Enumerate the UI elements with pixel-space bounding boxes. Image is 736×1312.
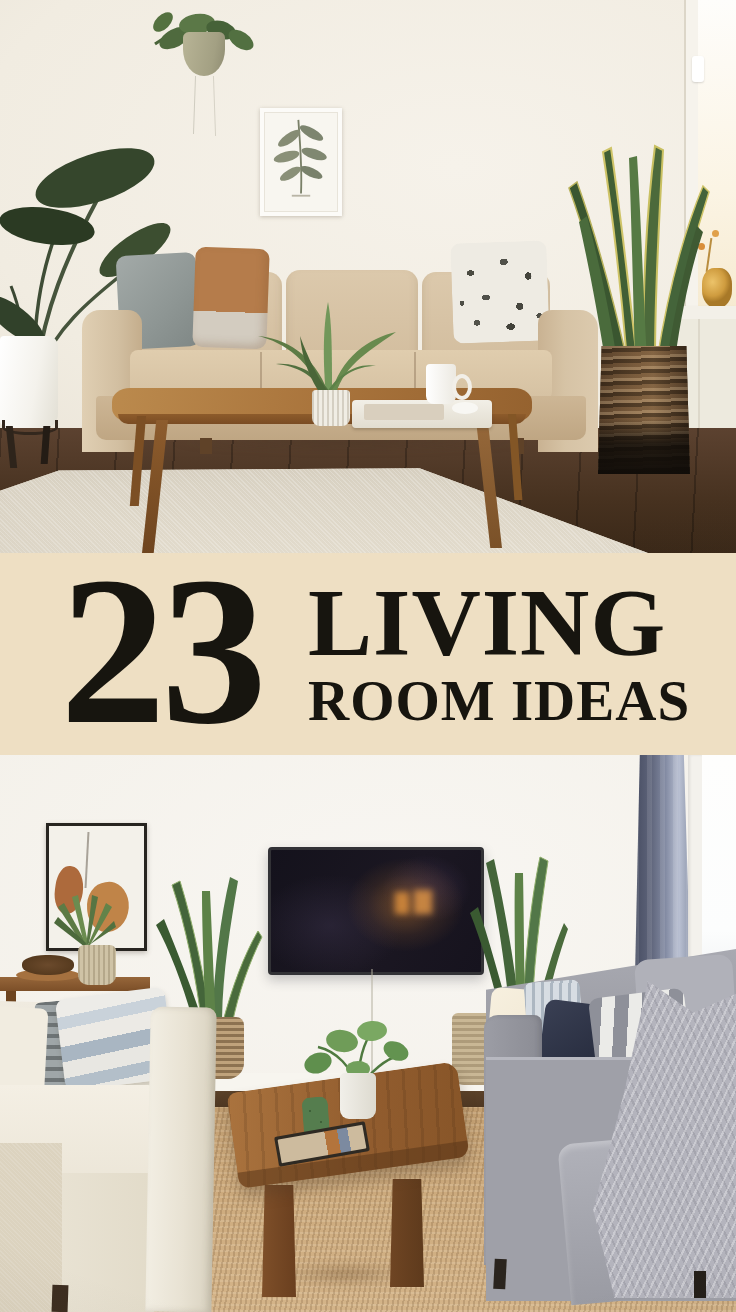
title-banner: 23 LIVING ROOM IDEAS: [0, 553, 736, 755]
console-plant-pot: [78, 945, 116, 985]
tv-screen-glow: [414, 890, 432, 914]
small-bowl: [452, 402, 478, 414]
mug-handle: [452, 374, 472, 400]
art-line: [85, 832, 90, 888]
gray-sofa: [478, 941, 736, 1312]
banner-title-line2: ROOM IDEAS: [308, 674, 690, 728]
white-sofa: [0, 993, 224, 1312]
table-plant: [252, 292, 402, 400]
botanical-sketch: [268, 112, 334, 204]
sofa-leg: [200, 438, 212, 454]
patterned-pillow: [450, 240, 549, 343]
book-on-tray: [364, 404, 444, 420]
gray-sofa-leg: [694, 1271, 706, 1298]
console-table-top: [0, 977, 150, 991]
banner-title-line1: LIVING: [308, 580, 690, 666]
coffee-table-leg: [390, 1179, 424, 1287]
white-sofa-leg: [52, 1285, 69, 1312]
bread-loaf: [22, 955, 74, 975]
pinterest-pin: 23 LIVING ROOM IDEAS: [0, 0, 736, 1312]
idea-count: 23: [60, 568, 262, 733]
console-plant: [52, 893, 118, 949]
white-sofa-arm: [145, 1006, 216, 1312]
left-plant-pot: [0, 336, 58, 428]
thermostat: [692, 56, 704, 82]
wall-mounted-tv: [268, 847, 484, 975]
tv-screen-glow: [395, 892, 409, 914]
gray-sofa-leg: [493, 1259, 507, 1290]
banner-title: LIVING ROOM IDEAS: [308, 580, 690, 728]
framed-print: [260, 108, 342, 216]
table-plant-pot: [340, 1073, 376, 1119]
bottom-photo: [0, 755, 736, 1312]
table-plant-pot: [312, 390, 350, 426]
woven-basket-planter: [598, 346, 690, 478]
coffee-table-leg: [262, 1185, 296, 1297]
top-photo: [0, 0, 736, 553]
